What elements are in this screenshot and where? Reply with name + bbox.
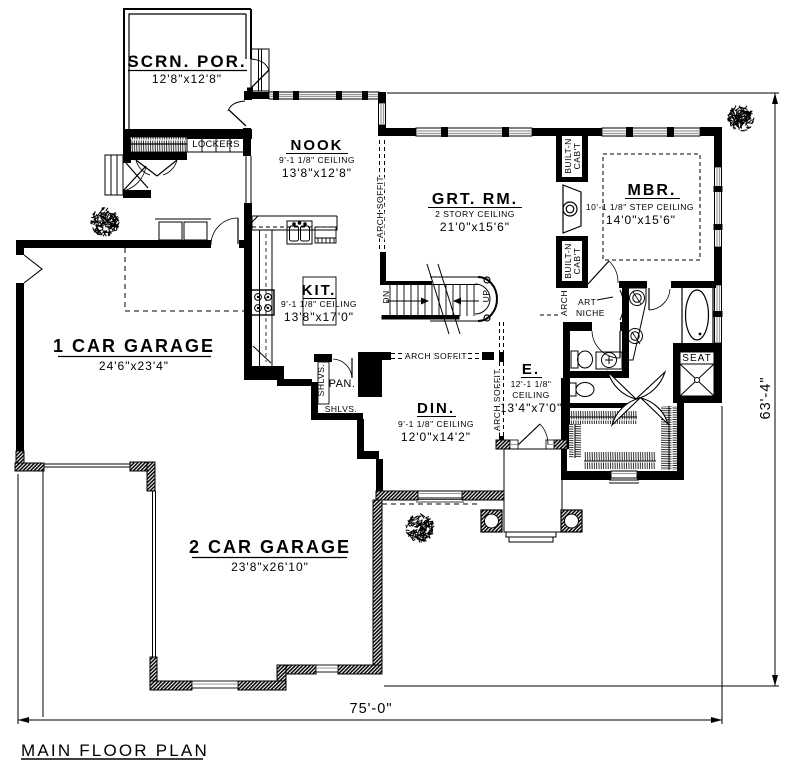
svg-text:9'-1 1/8" CEILING: 9'-1 1/8" CEILING (281, 299, 357, 309)
svg-text:12'-1 1/8": 12'-1 1/8" (511, 379, 552, 389)
svg-text:13'8"x17'0": 13'8"x17'0" (284, 310, 354, 324)
svg-text:SEAT: SEAT (682, 353, 711, 364)
svg-text:SHLVS.: SHLVS. (316, 364, 326, 397)
svg-text:1 CAR GARAGE: 1 CAR GARAGE (53, 336, 215, 356)
svg-text:10'-1 1/8" STEP CEILING: 10'-1 1/8" STEP CEILING (586, 202, 694, 212)
svg-text:UP: UP (481, 290, 491, 303)
svg-text:12'8"x12'8": 12'8"x12'8" (152, 72, 222, 86)
svg-text:63'-4": 63'-4" (758, 377, 774, 420)
svg-text:KIT.: KIT. (302, 282, 337, 299)
svg-text:ARCH SOFFIT: ARCH SOFFIT (375, 176, 385, 238)
svg-text:NOOK: NOOK (291, 137, 344, 154)
svg-text:ART: ART (578, 297, 596, 307)
svg-text:LOCKERS: LOCKERS (192, 139, 240, 150)
svg-text:MBR.: MBR. (628, 182, 677, 199)
svg-text:PAN.: PAN. (329, 378, 356, 390)
svg-text:9'-1 1/8" CEILING: 9'-1 1/8" CEILING (398, 419, 474, 429)
svg-text:GRT. RM.: GRT. RM. (432, 191, 518, 208)
svg-text:2 STORY CEILING: 2 STORY CEILING (435, 209, 515, 219)
svg-text:14'0"x15'6": 14'0"x15'6" (606, 213, 676, 227)
svg-text:ARCH SOFFIT: ARCH SOFFIT (492, 369, 502, 431)
svg-text:NICHE: NICHE (576, 308, 605, 318)
svg-text:13'4"x7'0": 13'4"x7'0" (500, 401, 562, 415)
svg-text:ARCH: ARCH (559, 290, 569, 316)
svg-text:SHLVS.: SHLVS. (325, 404, 358, 414)
svg-text:SCRN. POR.: SCRN. POR. (127, 52, 246, 71)
svg-text:75'-0": 75'-0" (350, 701, 393, 717)
svg-text:DN: DN (381, 290, 391, 303)
svg-text:CEILING: CEILING (512, 390, 550, 400)
svg-text:CAB'T: CAB'T (572, 248, 582, 275)
svg-text:2 CAR GARAGE: 2 CAR GARAGE (189, 537, 351, 557)
svg-text:MAIN FLOOR PLAN: MAIN FLOOR PLAN (21, 741, 209, 760)
svg-text:E.: E. (522, 361, 540, 378)
svg-text:DIN.: DIN. (417, 400, 455, 417)
svg-text:21'0"x15'6": 21'0"x15'6" (440, 220, 510, 234)
svg-text:24'6"x23'4": 24'6"x23'4" (99, 359, 169, 373)
svg-text:ARCH SOFFIT: ARCH SOFFIT (405, 351, 467, 361)
svg-text:13'8"x12'8": 13'8"x12'8" (282, 166, 352, 180)
svg-text:12'0"x14'2": 12'0"x14'2" (401, 430, 471, 444)
svg-text:23'8"x26'10": 23'8"x26'10" (231, 560, 309, 574)
svg-text:CAB'T: CAB'T (572, 143, 582, 170)
svg-text:9'-1 1/8" CEILING: 9'-1 1/8" CEILING (279, 155, 355, 165)
